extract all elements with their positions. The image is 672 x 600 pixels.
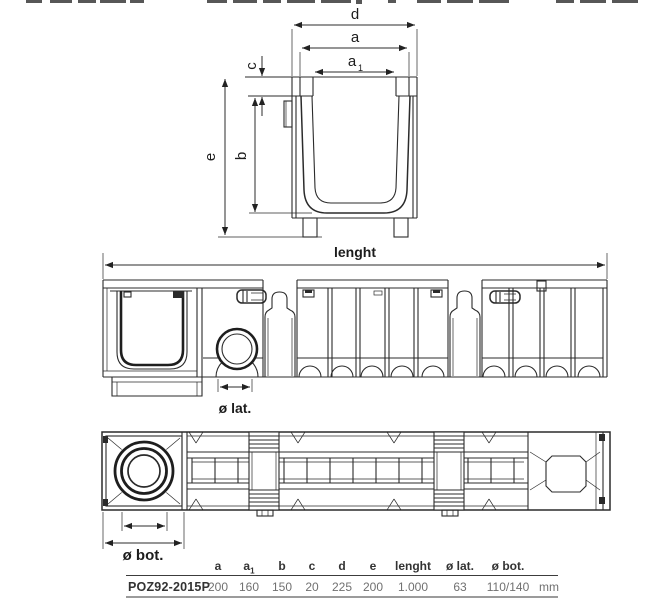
pipe-stub-right [490,291,520,303]
dim-label-d: d [351,6,359,23]
dim-label-a: a [351,29,360,46]
technical-drawing-svg: d a a 1 c b e lenght [0,0,672,600]
channel-datasheet-drawing: d a a 1 c b e lenght [0,0,672,600]
lateral-diameter-label: ø lat. [219,400,252,416]
dim-label-c: c [243,62,260,70]
length-label: lenght [334,244,376,260]
grate-clip [173,291,184,298]
bottom-diameter-label: ø bot. [123,547,164,564]
keyhole-joint [450,291,480,377]
dim-label-b: b [233,152,250,160]
connector-block [434,432,464,516]
right-end-cap [528,432,605,510]
dim-label-e: e [202,153,219,161]
pipe-stub-left [237,290,266,303]
bottom-outlet-circle [115,442,173,500]
bottom-outlet-block [103,432,187,510]
lateral-outlet-circle [217,329,257,369]
side-clip [284,101,292,127]
side-view: lenght [103,244,607,416]
bottom-view: ø bot. [102,432,610,564]
cross-section-view: d a a 1 c b e [202,6,417,237]
dim-label-a1: a [348,53,357,70]
top-tab [537,281,546,291]
dim-label-a1-sub: 1 [358,63,363,73]
keyhole-joint [265,292,295,377]
connector-block [249,432,279,516]
